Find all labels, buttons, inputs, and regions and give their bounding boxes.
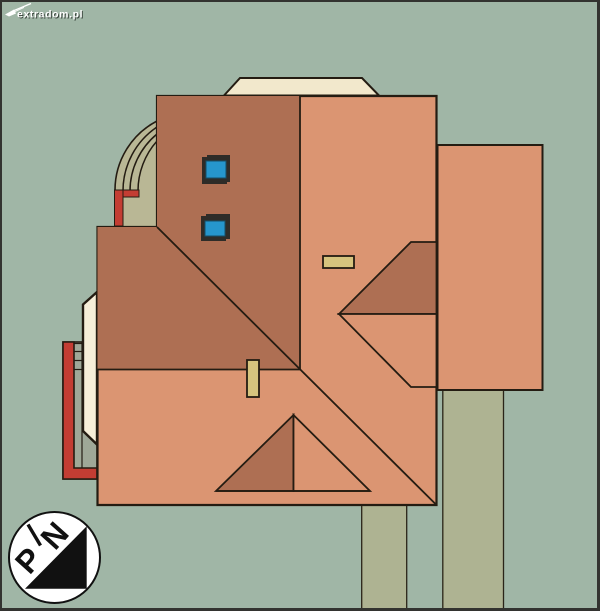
svg-text:extradom.pl: extradom.pl [17,9,83,21]
